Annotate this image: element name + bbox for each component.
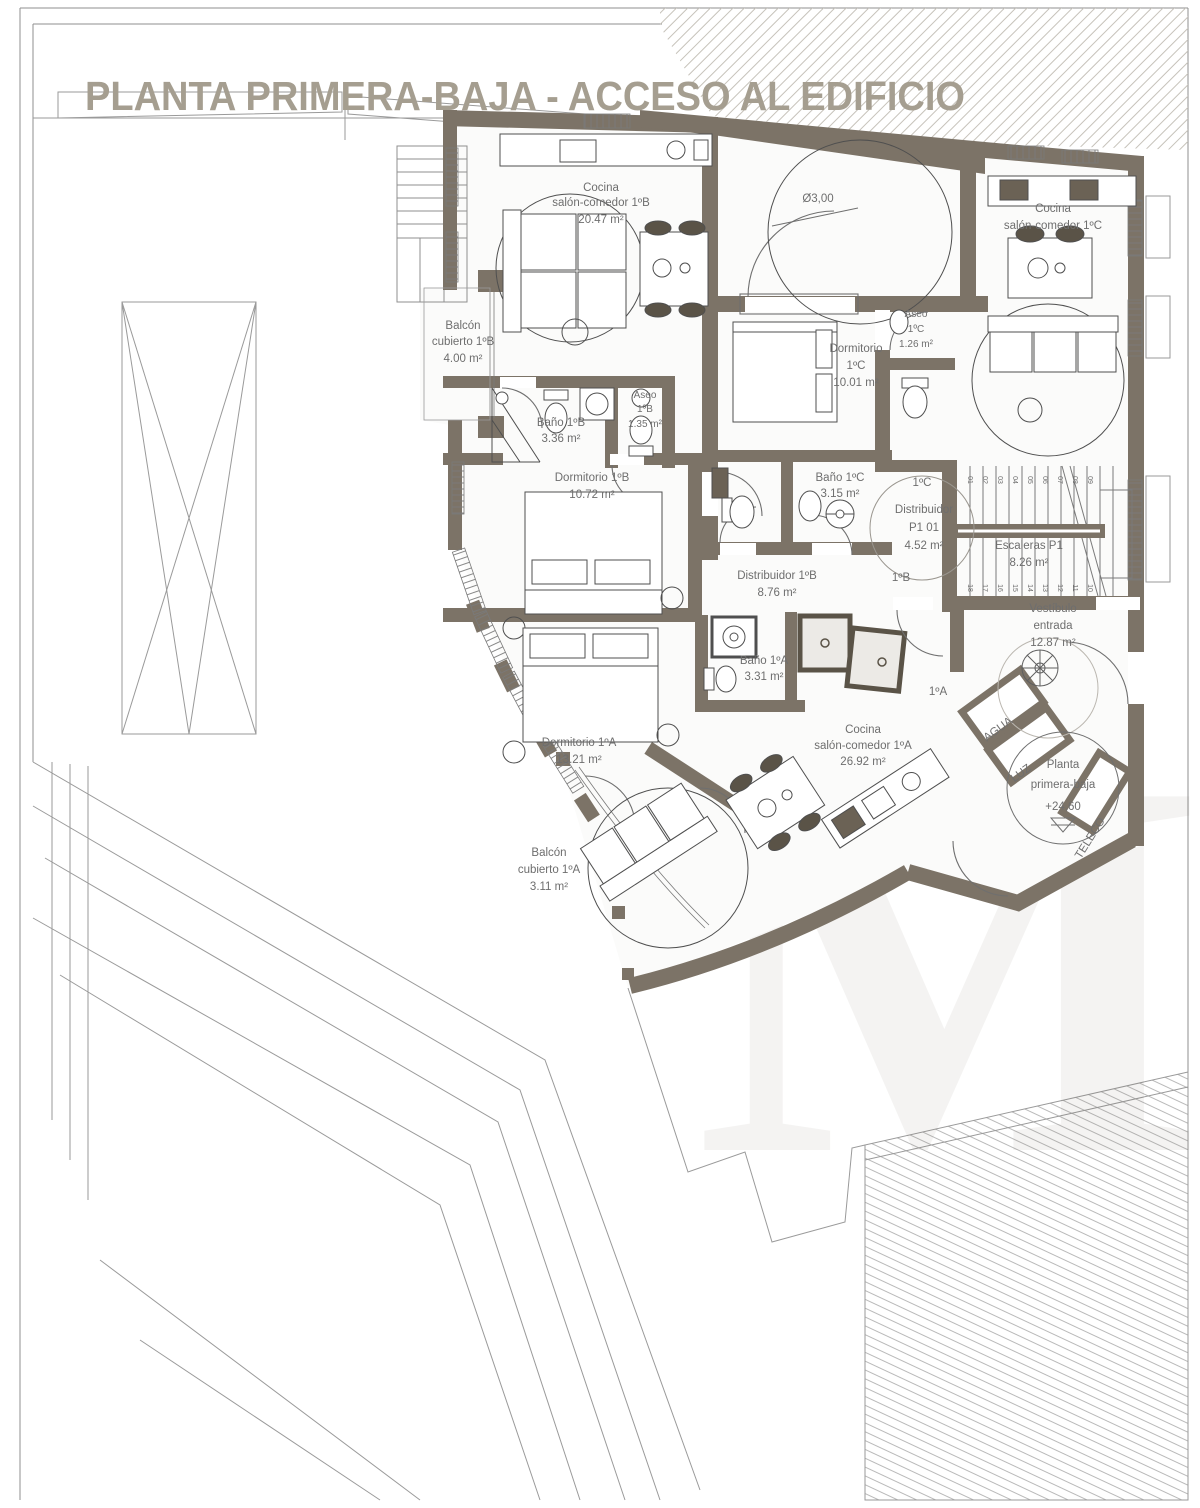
step-num: 16 bbox=[996, 584, 1003, 592]
floorplan-drawing: M bbox=[0, 0, 1200, 1508]
room-name: salón-comedor 1ºC bbox=[1004, 220, 1102, 232]
room-name: entrada bbox=[1033, 620, 1073, 632]
room-name: Cocina bbox=[845, 724, 881, 736]
room-area: 20.47 m² bbox=[578, 214, 624, 226]
door-label-1c: 1ºC bbox=[913, 477, 932, 489]
step-num: 05 bbox=[1026, 476, 1033, 484]
patio-diameter-label: Ø3,00 bbox=[802, 193, 833, 205]
door-label-1b: 1ºB bbox=[892, 572, 911, 584]
level-line1: Planta bbox=[1047, 759, 1080, 771]
step-num: 08 bbox=[1071, 476, 1078, 484]
step-num: 02 bbox=[981, 476, 988, 484]
room-area: 12.87 m² bbox=[1030, 637, 1076, 649]
room-area: 1.26 m² bbox=[899, 339, 934, 350]
room-name: Distribuidor bbox=[895, 504, 953, 516]
room-name: Cocina bbox=[1035, 203, 1071, 215]
room-name: Distribuidor 1ºB bbox=[737, 570, 817, 582]
step-num: 04 bbox=[1011, 476, 1018, 484]
room-name: Aseo bbox=[905, 309, 928, 320]
room-area: 3.15 m² bbox=[821, 488, 860, 500]
bed-1c bbox=[733, 322, 837, 422]
kitchen-counter-1b bbox=[500, 134, 712, 166]
room-area: 3.11 m² bbox=[530, 881, 568, 893]
room-label-vestibulo: Vestíbulo entrada 12.87 m² bbox=[1029, 603, 1076, 649]
room-name: 1ºC bbox=[908, 324, 924, 335]
room-label-balcon-1a: Balcón cubierto 1ºA 3.11 m² bbox=[518, 847, 581, 893]
room-name: Dormitorio bbox=[829, 343, 882, 355]
room-name: Escaleras P1 bbox=[995, 540, 1063, 552]
door-label-1a: 1ºA bbox=[929, 686, 948, 698]
step-num: 03 bbox=[996, 476, 1003, 484]
step-num: 06 bbox=[1041, 476, 1048, 484]
step-num: 09 bbox=[1086, 476, 1093, 484]
room-name: salón-comedor 1ºB bbox=[552, 197, 650, 209]
room-name: cubierto 1ºB bbox=[432, 336, 495, 348]
step-num: 07 bbox=[1056, 476, 1063, 484]
room-area: 3.31 m² bbox=[745, 671, 784, 683]
step-num: 01 bbox=[966, 476, 973, 484]
room-area: 10.72 m² bbox=[569, 489, 615, 501]
room-area: 3.36 m² bbox=[542, 433, 581, 445]
room-area: 8.26 m² bbox=[1010, 557, 1049, 569]
step-num: 10 bbox=[1086, 584, 1093, 592]
room-name: Vestíbulo bbox=[1029, 603, 1076, 615]
step-num: 11 bbox=[1071, 584, 1078, 591]
room-name: Baño 1ºC bbox=[816, 472, 865, 484]
room-name: Dormitorio 1ºB bbox=[555, 472, 630, 484]
step-num: 14 bbox=[1026, 584, 1033, 592]
room-area: 4.52 m² bbox=[905, 540, 944, 552]
room-area: 10.01 m² bbox=[833, 377, 879, 389]
room-name: Baño 1ºA bbox=[740, 655, 789, 667]
room-name: 1ºB bbox=[637, 404, 653, 415]
room-name: Balcón bbox=[445, 320, 480, 332]
step-num: 17 bbox=[981, 584, 988, 592]
step-num: 13 bbox=[1041, 584, 1048, 592]
room-area: 4.00 m² bbox=[444, 353, 483, 365]
room-name: Cocina bbox=[583, 182, 619, 194]
room-name: cubierto 1ºA bbox=[518, 864, 581, 876]
room-name: Balcón bbox=[531, 847, 566, 859]
room-name: 1ºC bbox=[847, 360, 866, 372]
step-num: 18 bbox=[966, 584, 973, 592]
room-name: Dormitorio 1ºA bbox=[542, 737, 617, 749]
room-name: Aseo bbox=[634, 390, 657, 401]
step-num: 12 bbox=[1056, 584, 1063, 592]
sheet-title: PLANTA PRIMERA-BAJA - ACCESO AL EDIFICIO bbox=[85, 73, 965, 119]
room-name: Baño 1ºB bbox=[537, 417, 586, 429]
floorplan-sheet: M bbox=[0, 0, 1200, 1508]
room-name: P1 01 bbox=[909, 522, 939, 534]
room-name: salón-comedor 1ºA bbox=[814, 740, 912, 752]
step-num: 15 bbox=[1011, 584, 1018, 592]
room-area: 1.35 m² bbox=[628, 419, 663, 430]
room-area: 8.76 m² bbox=[758, 587, 797, 599]
level-elevation: +24,60 bbox=[1045, 801, 1081, 813]
room-area: 13.21 m² bbox=[556, 754, 602, 766]
room-area: 26.92 m² bbox=[840, 756, 886, 768]
level-line2: primera-baja bbox=[1031, 779, 1096, 791]
